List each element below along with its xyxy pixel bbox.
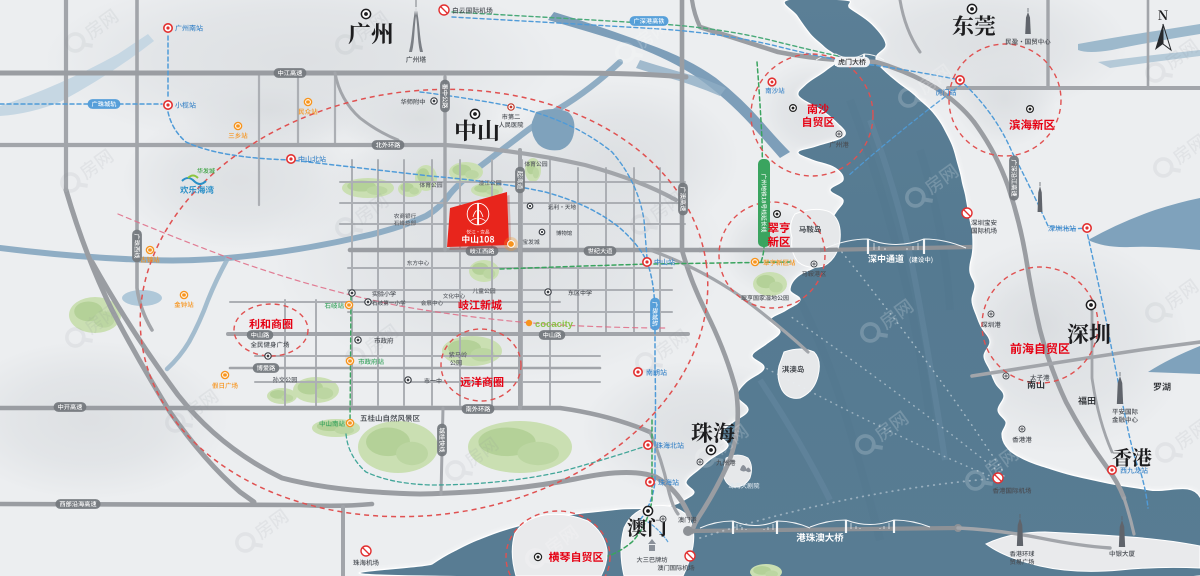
svg-text:cocacity: cocacity <box>535 319 574 330</box>
